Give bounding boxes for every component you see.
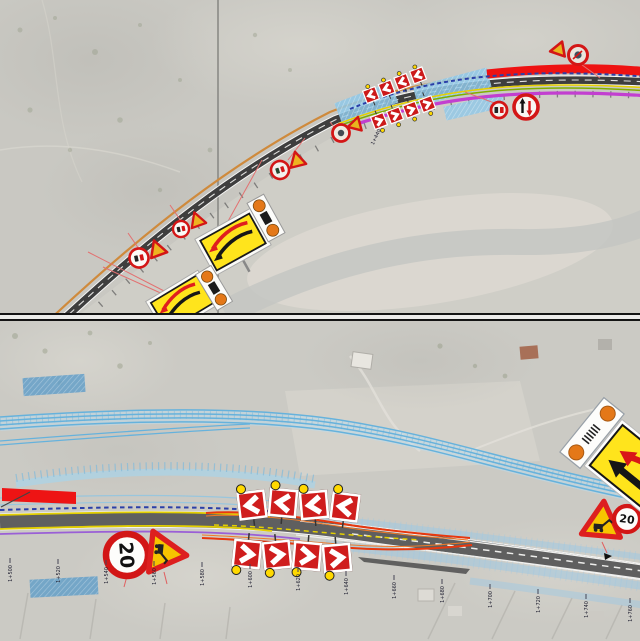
lamp-yellow-icon: [325, 571, 335, 581]
lamp-yellow-icon: [236, 484, 246, 494]
svg-text:1+640: 1+640: [344, 578, 350, 595]
lamp-yellow-icon: [271, 480, 281, 490]
plan-sheet-lower: 20 20: [0, 321, 640, 641]
svg-text:1+700: 1+700: [488, 591, 494, 608]
canal-work-area: [30, 576, 99, 598]
no-overtaking-sign: [491, 102, 507, 118]
svg-text:1+500: 1+500: [8, 565, 14, 582]
chevron-right-icon: [322, 543, 352, 573]
lamp-yellow-icon: [333, 484, 343, 494]
chevron-left-icon: [268, 488, 298, 518]
chevron-right-icon: [232, 539, 263, 570]
lamp-yellow-icon: [299, 484, 309, 494]
svg-text:1+600: 1+600: [248, 571, 254, 588]
lamp-yellow-icon: [231, 565, 241, 575]
svg-text:1+620: 1+620: [296, 574, 302, 591]
speed-limit-20-sign: 20: [614, 506, 640, 532]
svg-text:1+680: 1+680: [440, 586, 446, 603]
prohibition-sign: [569, 46, 588, 65]
svg-text:20: 20: [618, 512, 635, 527]
plan-sheet-upper: 1+440: [0, 0, 640, 313]
chevron-left-icon: [299, 490, 329, 520]
svg-text:1+740: 1+740: [584, 601, 590, 618]
traffic-signage-plan: 1+440: [0, 0, 640, 641]
svg-text:1+760: 1+760: [628, 605, 634, 622]
svg-text:1+560: 1+560: [152, 568, 158, 585]
svg-text:1+540: 1+540: [104, 567, 110, 584]
panel-divider: [0, 313, 640, 321]
svg-text:1+720: 1+720: [536, 596, 542, 613]
svg-text:1+580: 1+580: [200, 569, 206, 586]
svg-text:1+660: 1+660: [392, 582, 398, 599]
lamp-yellow-icon: [265, 568, 275, 578]
lower-plan-map: 20 20: [0, 321, 640, 641]
svg-text:1+520: 1+520: [56, 566, 62, 583]
svg-text:20: 20: [114, 541, 138, 569]
speed-limit-20-sign: 20: [106, 534, 148, 576]
oncoming-priority-sign: [514, 95, 538, 119]
chevron-right-icon: [292, 541, 322, 571]
chevron-left-icon: [329, 491, 360, 522]
chevron-right-icon: [262, 540, 293, 571]
upper-plan-map: 1+440: [0, 0, 640, 313]
